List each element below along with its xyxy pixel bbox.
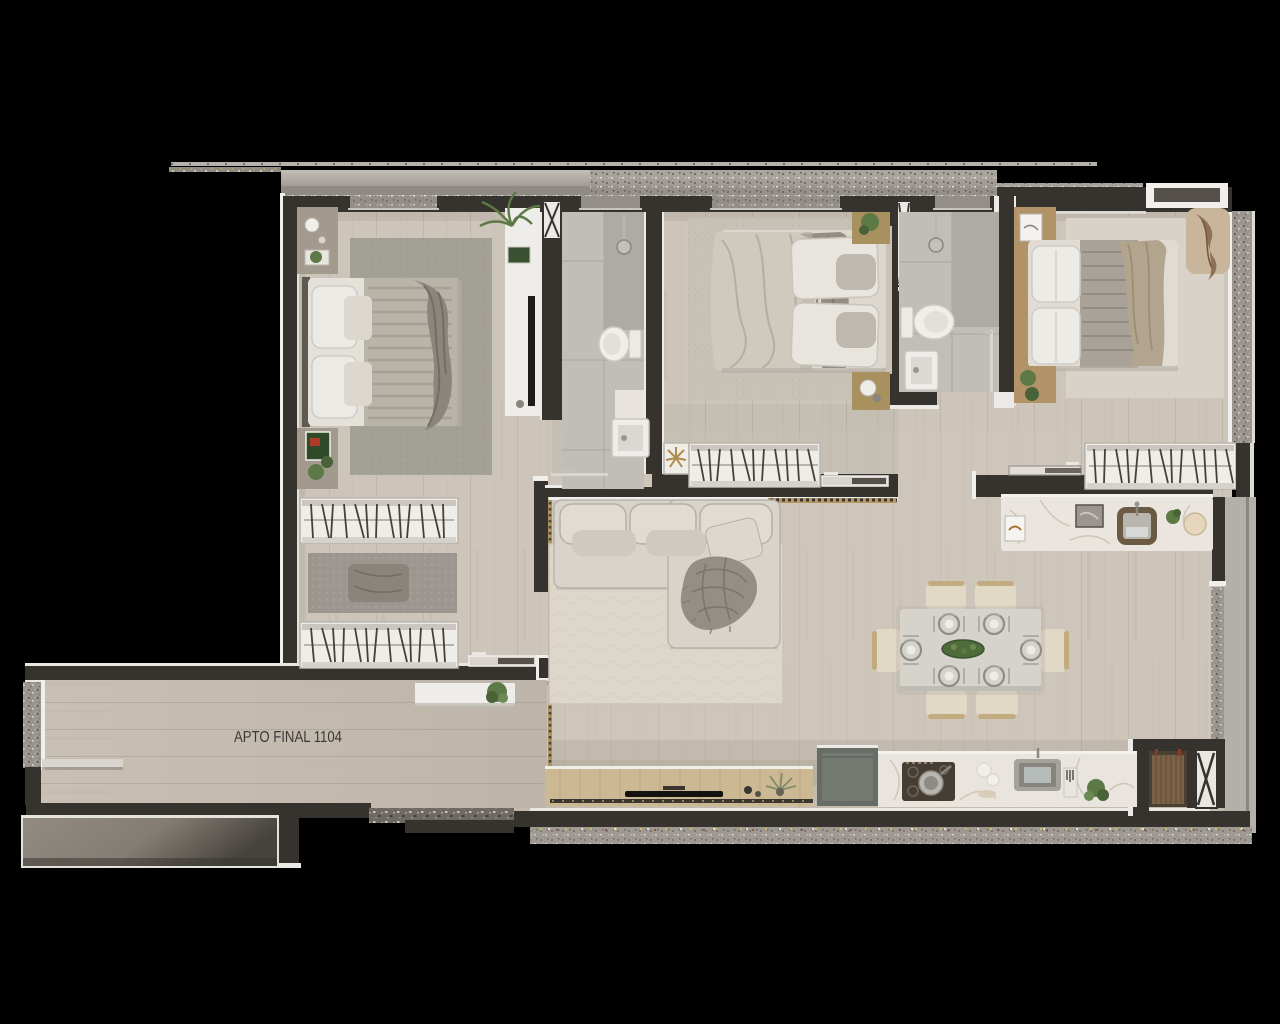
svg-text:APTO FINAL 1104: APTO FINAL 1104 bbox=[234, 729, 342, 746]
